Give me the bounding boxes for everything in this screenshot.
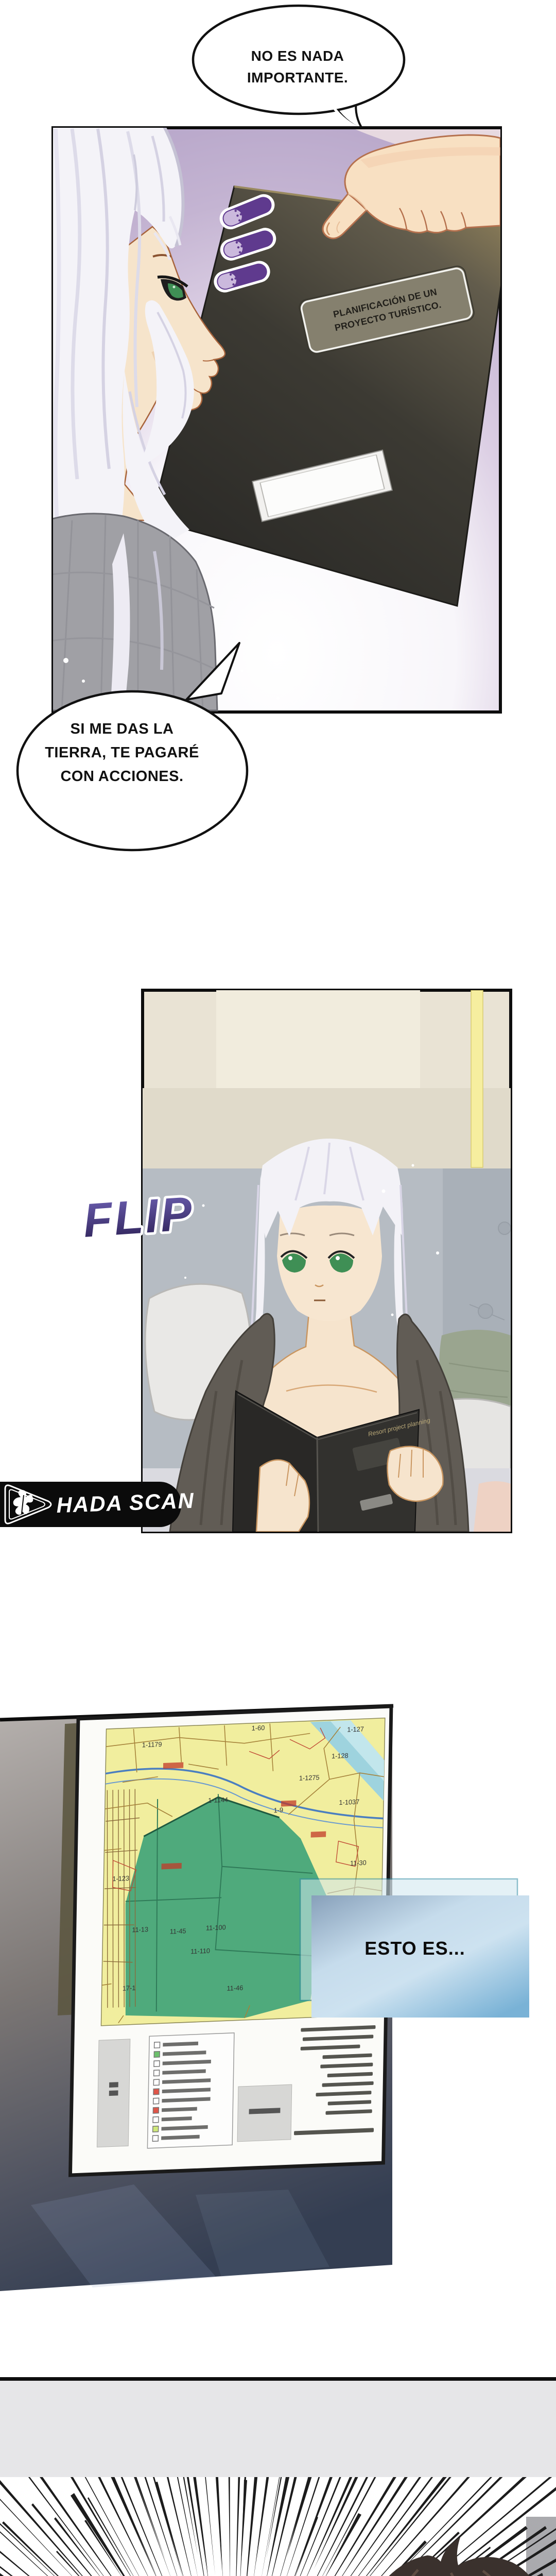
svg-text:CON ACCIONES.: CON ACCIONES. (60, 768, 183, 785)
svg-text:1-127: 1-127 (347, 1725, 364, 1733)
svg-text:1-9: 1-9 (274, 1806, 284, 1814)
svg-text:NO ES NADA: NO ES NADA (251, 48, 344, 64)
svg-text:1-60: 1-60 (252, 1724, 265, 1732)
svg-text:HADA SCAN: HADA SCAN (56, 1488, 195, 1517)
svg-text:17-1: 17-1 (123, 1984, 136, 1992)
svg-text:11-30: 11-30 (350, 1859, 367, 1867)
svg-text:1-123: 1-123 (112, 1874, 129, 1883)
svg-text:1-128: 1-128 (332, 1752, 349, 1760)
svg-text:1-1037: 1-1037 (339, 1798, 359, 1806)
svg-text:11-100: 11-100 (206, 1923, 226, 1932)
svg-text:1-1275: 1-1275 (299, 1773, 320, 1782)
svg-text:FLIP: FLIP (81, 1187, 196, 1247)
svg-text:ESTO ES...: ESTO ES... (364, 1938, 465, 1959)
svg-text:TIERRA, TE PAGARÉ: TIERRA, TE PAGARÉ (45, 743, 199, 761)
svg-text:11-45: 11-45 (170, 1927, 186, 1935)
svg-text:1-1144: 1-1144 (208, 1795, 228, 1804)
svg-text:1-1179: 1-1179 (142, 1740, 162, 1749)
svg-text:11-46: 11-46 (227, 1984, 243, 1992)
svg-text:11-13: 11-13 (132, 1925, 148, 1934)
svg-text:SI ME DAS LA: SI ME DAS LA (71, 721, 174, 737)
svg-text:11-110: 11-110 (190, 1947, 210, 1956)
svg-text:IMPORTANTE.: IMPORTANTE. (247, 70, 348, 86)
